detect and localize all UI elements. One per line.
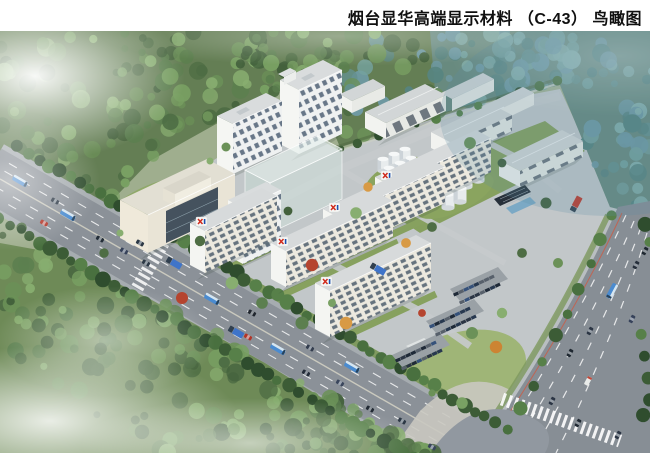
aerial-rendering (0, 31, 650, 453)
xianhua-logo (321, 277, 332, 286)
drawing-title: 烟台显华高端显示材料 （C-43） 鸟瞰图 (348, 5, 642, 29)
rendering-sheet: 烟台显华高端显示材料 （C-43） 鸟瞰图 (0, 0, 650, 460)
xianhua-logo (329, 203, 340, 212)
xianhua-logo (196, 217, 207, 226)
xianhua-logo (277, 237, 288, 246)
